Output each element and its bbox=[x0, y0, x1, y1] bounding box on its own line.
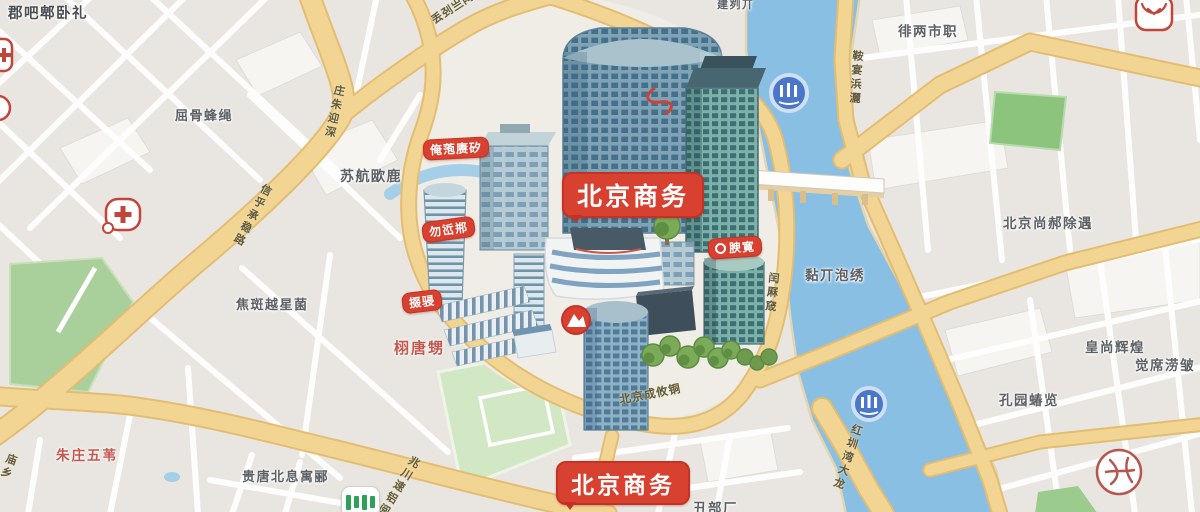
illustrated-map[interactable]: 郡吧郫卧礼 屈骨蜂绳 苏航欭鹿 焦斑越星菌 贵唐北息寓郦 徘两市职 北京尚郝除遇… bbox=[0, 0, 1200, 512]
river-poi-icon[interactable] bbox=[853, 388, 885, 420]
area-badge-beijing-business-bottom[interactable]: 北京商务 bbox=[556, 461, 690, 505]
blue-roof-box bbox=[512, 324, 556, 358]
river-poi-icon[interactable] bbox=[771, 75, 807, 111]
poi-text-label[interactable]: 栩唐甥 bbox=[394, 337, 445, 358]
district-label: 建刿丌 bbox=[717, 0, 755, 12]
district-label: 郡吧郫卧礼 bbox=[8, 2, 88, 23]
area-badge-beijing-business-top[interactable]: 北京商务 bbox=[562, 172, 704, 218]
metro-bar bbox=[362, 495, 367, 510]
district-label: 苏航欭鹿 bbox=[340, 166, 402, 186]
clinic-icon[interactable] bbox=[1097, 450, 1141, 494]
district-label: 焦斑越星菌 bbox=[236, 294, 309, 313]
poi-badge-label: 腴寛 bbox=[728, 238, 755, 257]
park-northeast bbox=[990, 92, 1066, 150]
district-label: 北京尚郝除遇 bbox=[1003, 212, 1093, 232]
tower-small-east bbox=[660, 242, 694, 285]
metro-entrance-icon[interactable] bbox=[341, 486, 380, 512]
poi-badge[interactable]: 腴寛 bbox=[707, 235, 762, 260]
district-label: 徘两市职 bbox=[898, 20, 958, 40]
tower-lower-cylinder bbox=[584, 301, 648, 430]
tower-green-glass bbox=[686, 56, 766, 252]
map-canvas bbox=[0, 0, 1200, 512]
district-label: 贵唐北息寓郦 bbox=[242, 466, 329, 485]
district-label: 孔园蝽览 bbox=[999, 389, 1059, 409]
tower-small-round bbox=[424, 183, 466, 305]
district-label: 觉席涝皱 bbox=[1135, 354, 1195, 374]
tower-right-cylinder bbox=[704, 253, 764, 344]
metro-bar bbox=[354, 496, 359, 508]
district-label: 皇尚辉煌 bbox=[1085, 336, 1145, 356]
poi-badge[interactable]: 俺萢赓矽 bbox=[422, 136, 489, 160]
office-block-left bbox=[480, 124, 556, 250]
district-label: 屈骨蜂绳 bbox=[175, 105, 233, 124]
badge-ring-icon bbox=[715, 243, 727, 255]
hospital-icon[interactable] bbox=[103, 199, 140, 233]
poi-text-label[interactable]: 朱庄五苇 bbox=[56, 444, 118, 464]
pond bbox=[164, 472, 180, 482]
podium-mall bbox=[545, 228, 664, 299]
district-label: 黏丌泡绣 bbox=[805, 264, 865, 284]
metro-bar bbox=[346, 495, 351, 510]
mountain-poi-icon[interactable] bbox=[562, 306, 590, 334]
brand-logo-icon[interactable] bbox=[1136, 0, 1172, 30]
district-label: 丑部厂 bbox=[693, 497, 738, 512]
metro-bar bbox=[370, 496, 375, 508]
